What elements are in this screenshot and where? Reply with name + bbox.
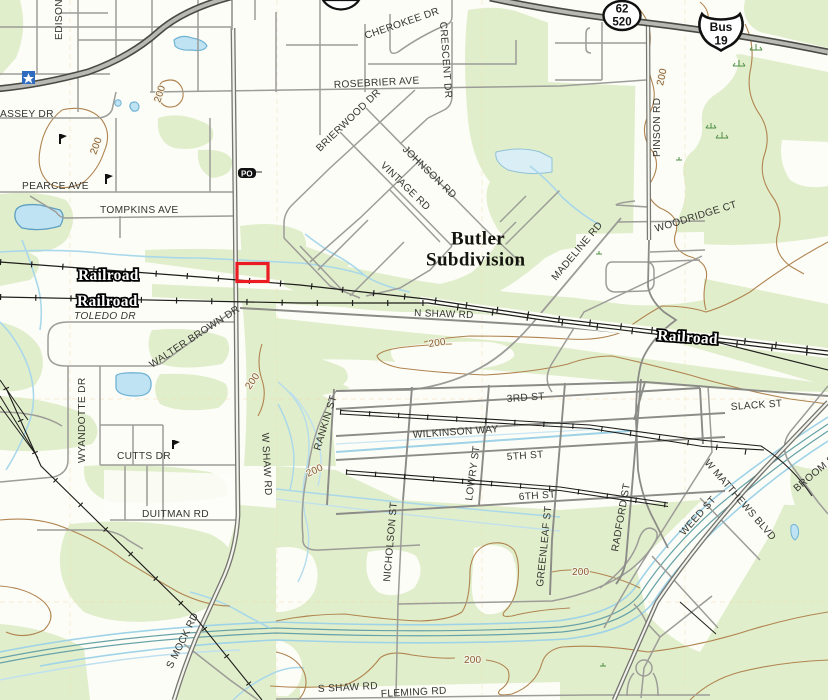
svg-text:62: 62 [616,4,629,16]
svg-text:Railroad: Railroad [77,293,138,310]
svg-text:DUITMAN RD: DUITMAN RD [142,509,209,520]
svg-text:Butler: Butler [451,229,505,250]
svg-text:TOMPKINS AVE: TOMPKINS AVE [100,205,179,216]
svg-text:PO: PO [241,170,253,179]
svg-text:19: 19 [714,34,728,48]
svg-text:PINSON RD: PINSON RD [652,98,663,157]
svg-text:Subdivision: Subdivision [426,250,525,271]
svg-text:PEARCE AVE: PEARCE AVE [22,181,89,192]
svg-text:WYANDOTTE DR: WYANDOTTE DR [77,378,88,463]
svg-text:520: 520 [612,17,631,29]
svg-text:N SHAW RD: N SHAW RD [414,308,474,321]
svg-text:200: 200 [464,655,482,666]
svg-text:Bus: Bus [710,20,733,34]
svg-text:EDISON: EDISON [54,0,65,40]
svg-text:ASSEY DR: ASSEY DR [0,109,54,120]
svg-text:200: 200 [572,567,590,578]
svg-text:TOLEDO DR: TOLEDO DR [74,311,136,322]
svg-text:Railroad: Railroad [78,267,139,284]
svg-text:CUTTS DR: CUTTS DR [117,451,171,462]
